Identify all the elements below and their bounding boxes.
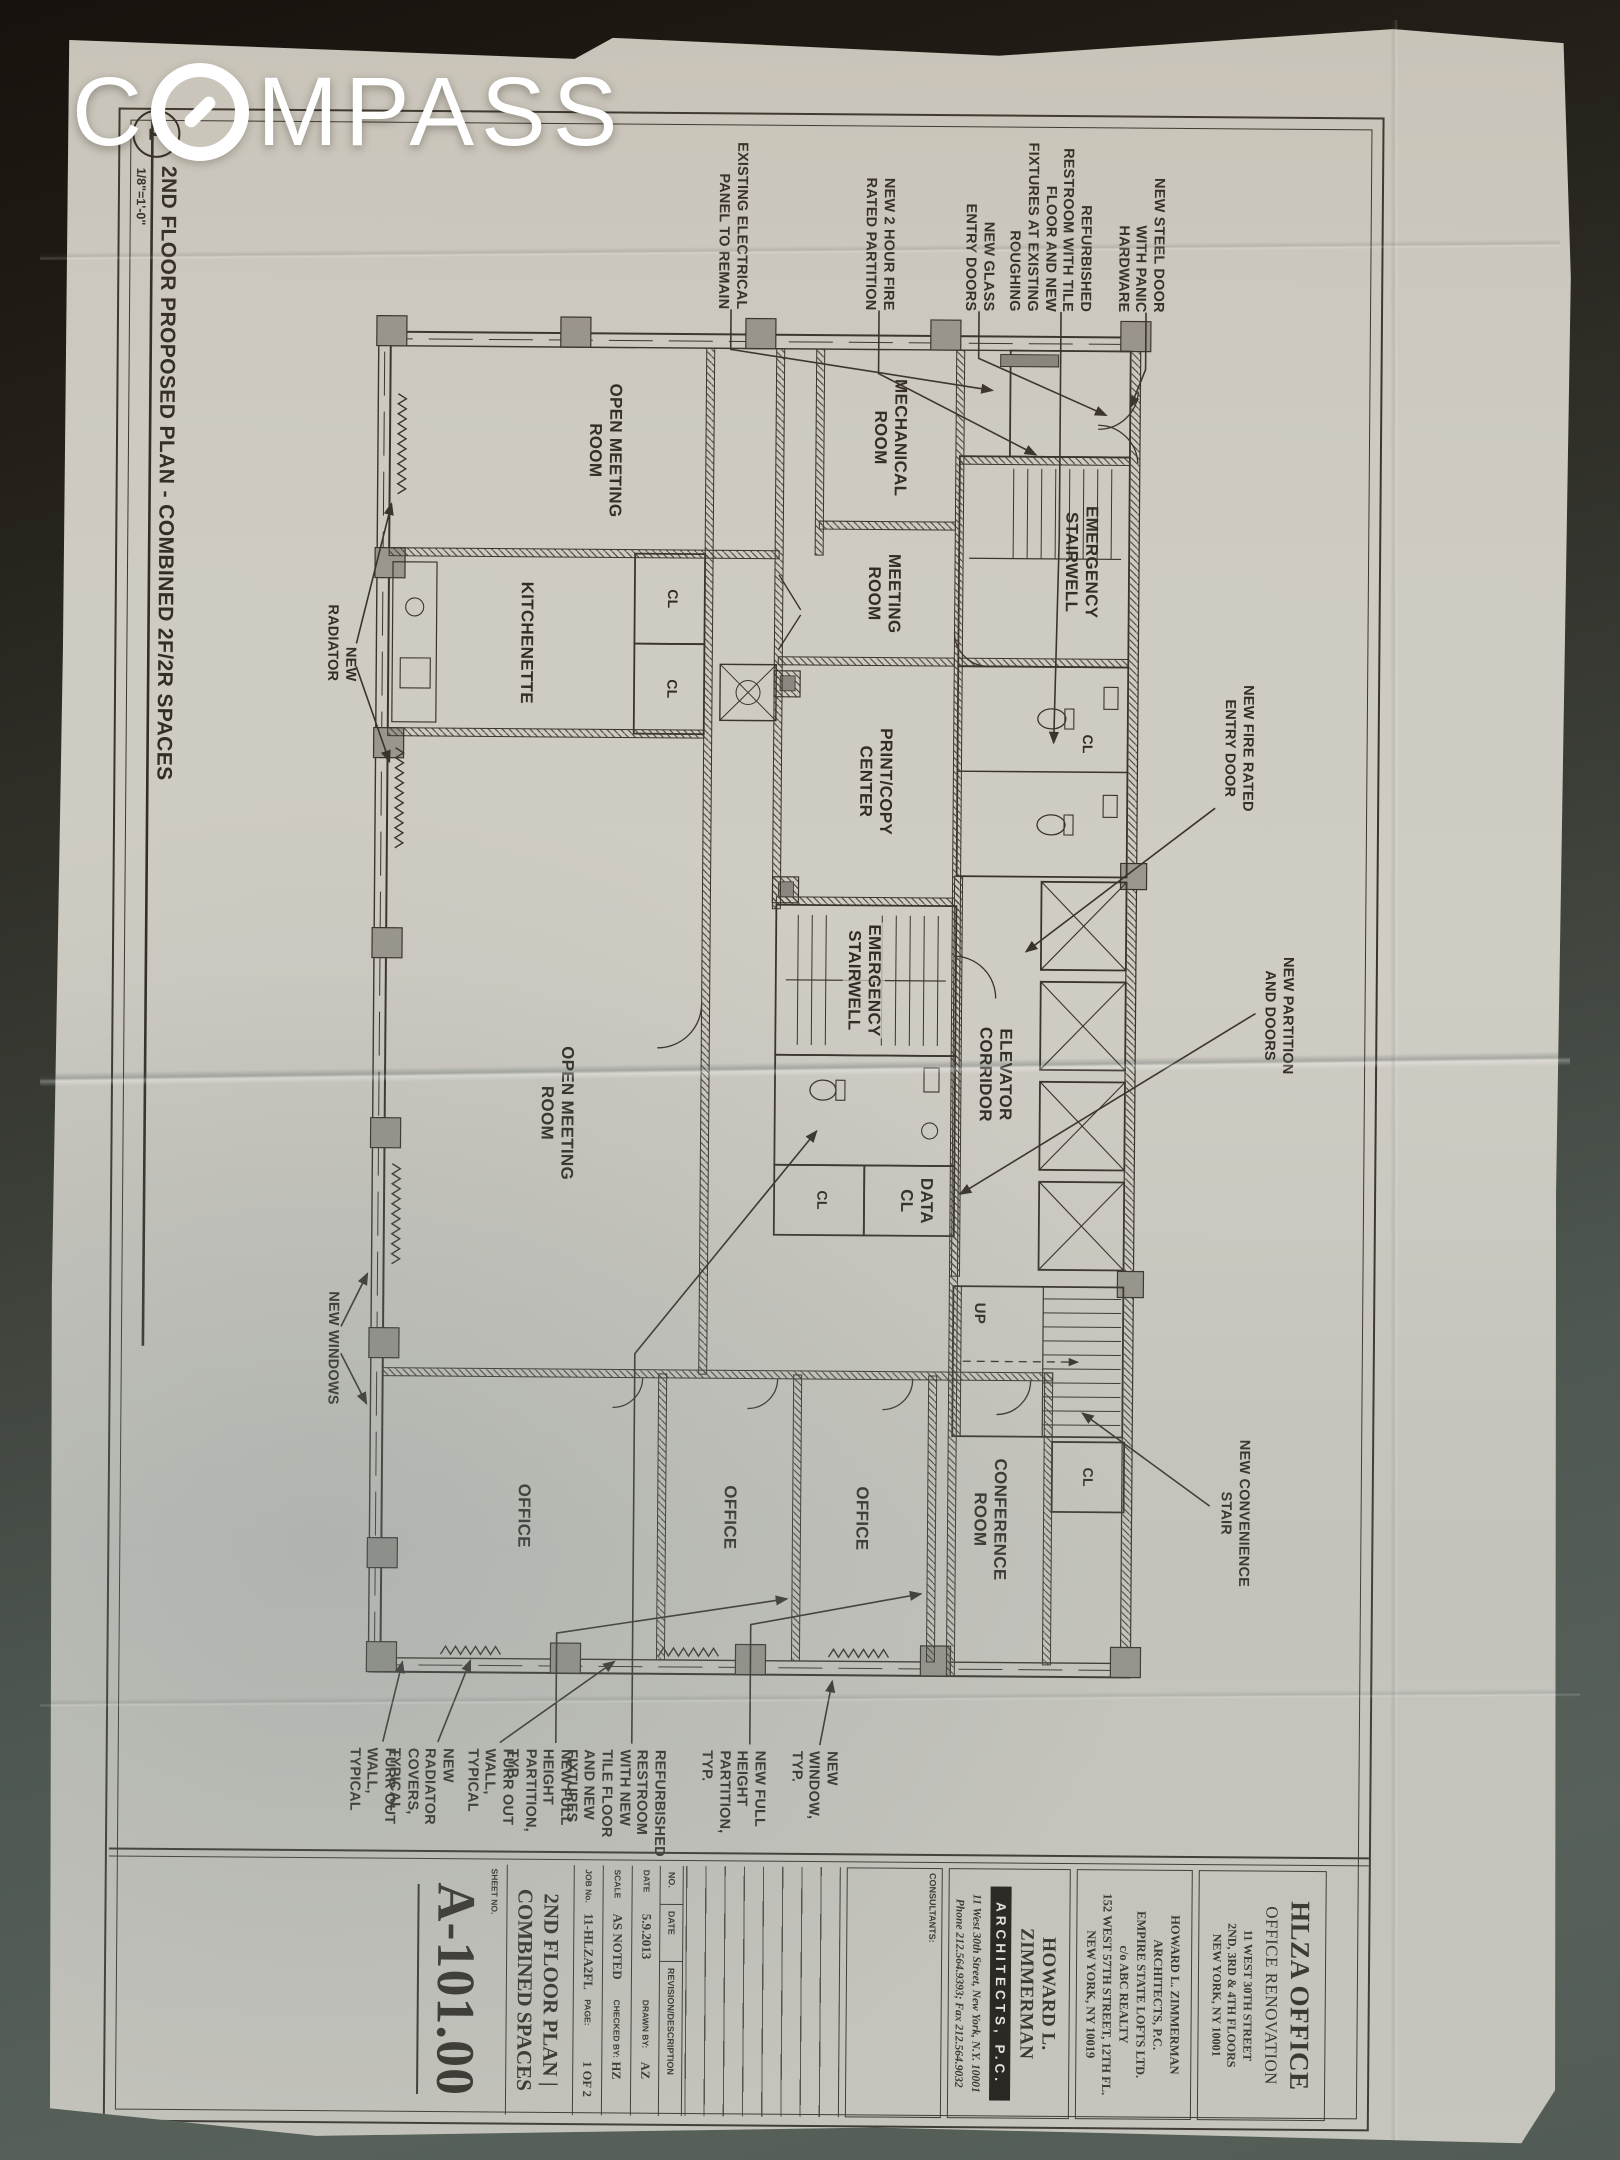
field-checkedby-value: HZ bbox=[608, 2061, 623, 2115]
titleblock-sheet-title: 2ND FLOOR PLAN | COMBINED SPACES bbox=[505, 1865, 573, 2116]
field-row-job: JOB No. 11-HLZA2FL PAGE: 1 OF 2 bbox=[572, 1865, 603, 2115]
architect-address: 11 West 30th Street, New York, N.Y. 1000… bbox=[966, 1869, 985, 2117]
room-label-kitchenette: KITCHENETTE bbox=[516, 582, 537, 704]
room-label-print-copy-center: PRINT/COPY CENTER bbox=[855, 728, 896, 835]
compass-needle-icon bbox=[151, 63, 249, 161]
field-date-value: 5.9.2013 bbox=[638, 1914, 655, 2000]
field-drawnby-label: DRAWN BY: bbox=[640, 2000, 650, 2062]
sheet-number-rule bbox=[416, 1884, 420, 2094]
interior-partitions bbox=[380, 346, 1060, 1677]
annotation-new-windows: NEW WINDOWS bbox=[323, 1291, 342, 1421]
annotation-existing-electrical-panel: EXISTING ELECTRICAL PANEL TO REMAIN bbox=[714, 129, 751, 309]
drawing-title: 2ND FLOOR PROPOSED PLAN - COMBINED 2F/2R… bbox=[151, 166, 180, 781]
annotation-new-fire-rated-entry-door: NEW FIRE RATED ENTRY DOOR bbox=[1220, 668, 1257, 828]
titleblock-fields: DATE 5.9.2013 DRAWN BY: AZ SCALE AS NOTE… bbox=[575, 1865, 661, 2116]
photo-of-floorplan: EMERGENCY STAIRWELL MECHANICAL ROOM MEET… bbox=[0, 0, 1620, 2160]
field-row-date: DATE 5.9.2013 DRAWN BY: AZ bbox=[630, 1866, 661, 2116]
field-jobno-label: JOB No. bbox=[583, 1865, 593, 1913]
room-label-conference-room: CONFERENCE ROOM bbox=[969, 1458, 1010, 1580]
drawing-sheet: EMERGENCY STAIRWELL MECHANICAL ROOM MEET… bbox=[97, 100, 1393, 2138]
compass-watermark: C MPASS bbox=[72, 56, 624, 168]
annotation-full-height-partition-1: NEW FULL HEIGHT PARTITION, TYP. bbox=[696, 1750, 768, 1853]
sheet-no-label: SHEET NO. bbox=[488, 1865, 503, 2115]
room-label-elevator-corridor: ELEVATOR CORRIDOR bbox=[975, 1027, 1016, 1122]
titleblock-revisions: NO. DATE REVISION/DESCRIPTION bbox=[659, 1866, 841, 2117]
drawing-scale: 1/8"=1'-0" bbox=[134, 168, 148, 226]
consultants-label: CONSULTANTS: bbox=[927, 1873, 938, 1943]
field-row-scale: SCALE AS NOTED CHECKED BY: HZ bbox=[601, 1865, 632, 2115]
annotation-refurbished-restroom-roughing: REFURBISHED RESTROOM WITH TILE FLOOR AND… bbox=[1005, 132, 1095, 313]
room-label-office-3: OFFICE bbox=[513, 1484, 534, 1548]
closet-label-3: CL bbox=[814, 1190, 831, 1209]
titleblock-owner: HOWARD L. ZIMMERMAN ARCHITECTS, P.C. EMP… bbox=[1075, 1869, 1193, 2120]
compass-wordmark-prefix: C bbox=[72, 56, 149, 168]
annotation-new-window-typ: NEW WINDOW, TYP. bbox=[786, 1751, 840, 1853]
project-name: HLZA OFFICE bbox=[1283, 1872, 1316, 2120]
closet-label-5: CL bbox=[1079, 734, 1096, 753]
room-label-office-2: OFFICE bbox=[719, 1485, 740, 1549]
blueprint-paper: EMERGENCY STAIRWELL MECHANICAL ROOM MEET… bbox=[44, 10, 1575, 2150]
room-label-mechanical-room: MECHANICAL ROOM bbox=[870, 379, 911, 497]
architect-firm-bar: ARCHITECTS, P.C. bbox=[989, 1886, 1012, 2100]
revision-no-label: NO. bbox=[661, 1866, 683, 1905]
compass-wordmark-suffix: MPASS bbox=[257, 56, 624, 168]
field-jobno-value: 11-HLZA2FL bbox=[580, 1913, 597, 1999]
stair-up-label: UP bbox=[970, 1303, 988, 1325]
annotation-new-radiator: NEW RADIATOR bbox=[323, 571, 359, 681]
closet-label-2: CL bbox=[664, 679, 681, 698]
field-page-label: PAGE: bbox=[582, 1999, 592, 2061]
field-scale-value: AS NOTED bbox=[609, 1913, 626, 1999]
closet-label-4: CL bbox=[1080, 1468, 1097, 1487]
room-label-office-1: OFFICE bbox=[851, 1486, 872, 1550]
titleblock-consultants: CONSULTANTS: bbox=[845, 1867, 943, 2118]
annotation-refurbished-restroom-new-tile: REFURBISHED RESTROOM WITH NEW TILE FLOOR… bbox=[561, 1749, 668, 1852]
field-scale-label: SCALE bbox=[612, 1865, 622, 1913]
core-rooms bbox=[948, 350, 1139, 1512]
radiator-symbols bbox=[388, 394, 898, 1658]
architect-name: HOWARD L. ZIMMERMAN bbox=[1014, 1870, 1060, 2118]
revision-rule-lines bbox=[682, 1866, 840, 2117]
annotation-new-steel-door: NEW STEEL DOOR WITH PANIC HARDWARE bbox=[1113, 132, 1167, 312]
room-label-meeting-room: MEETING ROOM bbox=[863, 554, 904, 634]
field-drawnby-value: AZ bbox=[637, 2062, 652, 2116]
architect-phone: Phone 212.564.9393; Fax 212.564.9032 bbox=[948, 1869, 967, 2117]
annotation-new-glass-entry-doors: NEW GLASS ENTRY DOORS bbox=[961, 131, 998, 311]
annotation-2hr-fire-rated-partition: NEW 2 HOUR FIRE RATED PARTITION bbox=[861, 130, 898, 310]
room-label-emergency-stairwell-2: EMERGENCY STAIRWELL bbox=[842, 922, 885, 1039]
titleblock-sheet-number: SHEET NO. A-101.00 bbox=[391, 1864, 503, 2115]
field-checkedby-label: CHECKED BY: bbox=[611, 1999, 621, 2061]
annotation-furr-out-wall-1: FURR OUT WALL, TYPICAL bbox=[462, 1748, 516, 1850]
revision-header: NO. DATE REVISION/DESCRIPTION bbox=[658, 1866, 684, 2116]
closet-label-1: CL bbox=[664, 589, 681, 608]
room-label-data-cl: DATA CL bbox=[896, 1178, 936, 1224]
structural-columns bbox=[366, 316, 1151, 1678]
annotation-new-convenience-stair: NEW CONVENIENCE STAIR bbox=[1216, 1438, 1253, 1588]
room-label-open-meeting-room-1: OPEN MEETING ROOM bbox=[584, 383, 625, 517]
revision-date-label: DATE bbox=[660, 1905, 682, 1962]
revision-description-label: REVISION/DESCRIPTION bbox=[659, 1962, 682, 2116]
sheet-anchor: EMERGENCY STAIRWELL MECHANICAL ROOM MEET… bbox=[97, 100, 1393, 2138]
room-label-emergency-stairwell-1: EMERGENCY STAIRWELL bbox=[1061, 506, 1102, 619]
titleblock-project: HLZA OFFICE OFFICE RENOVATION 11 WEST 30… bbox=[1197, 1870, 1327, 2121]
project-subtitle: OFFICE RENOVATION bbox=[1260, 1872, 1282, 2120]
field-page-value: 1 OF 2 bbox=[579, 2061, 594, 2115]
sheet-number: A-101.00 bbox=[424, 1864, 488, 2114]
exterior-walls bbox=[368, 332, 1141, 1678]
annotation-new-partition-and-doors: NEW PARTITION AND DOORS bbox=[1260, 941, 1297, 1091]
field-date-label: DATE bbox=[641, 1866, 651, 1914]
titleblock-architect: HOWARD L. ZIMMERMAN ARCHITECTS, P.C. 11 … bbox=[947, 1868, 1071, 2119]
project-address: 11 WEST 30TH STREET 2ND, 3RD & 4TH FLOOR… bbox=[1207, 1871, 1256, 2119]
annotation-furr-out-wall-2: FURR OUT WALL, TYPICAL bbox=[344, 1747, 398, 1849]
room-label-open-meeting-room-2: OPEN MEETING ROOM bbox=[536, 1046, 577, 1180]
